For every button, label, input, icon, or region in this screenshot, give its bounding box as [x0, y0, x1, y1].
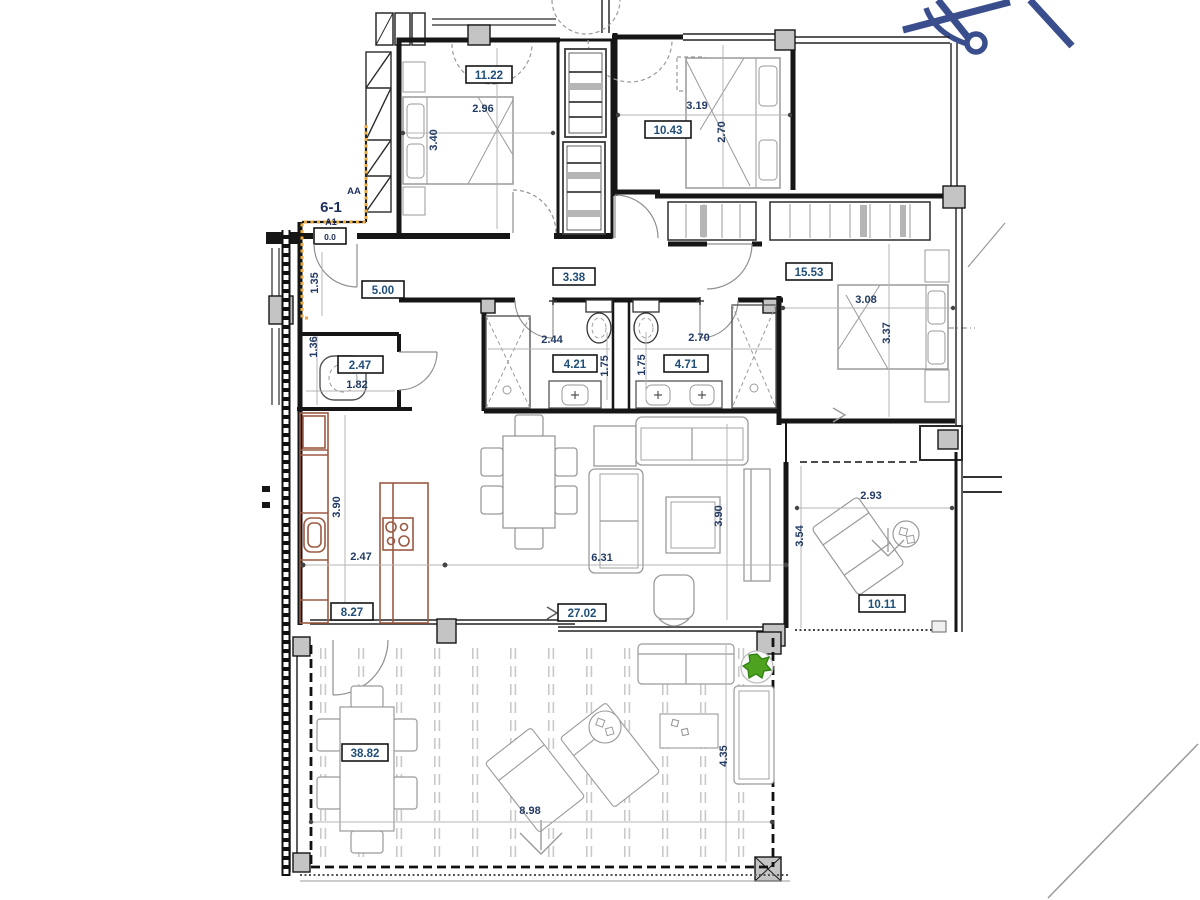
wardrobe-row	[668, 202, 930, 240]
dim-bath2-depth: 1.75	[636, 354, 648, 375]
terrace-side-area-label: 10.11	[868, 599, 897, 611]
side-table	[594, 426, 636, 466]
section-marker-label: AA	[347, 186, 361, 197]
dim-terrace-side-depth: 3.54	[794, 524, 806, 546]
outdoor-sofa	[638, 644, 734, 684]
dim-bath2-width: 2.70	[688, 332, 709, 344]
outdoor-table	[340, 707, 394, 831]
dim-bedroom2-depth: 2.70	[716, 121, 728, 142]
entry-ref-label: A1	[325, 217, 337, 227]
bedroom2-furniture	[677, 57, 780, 188]
hall-area-label: 5.00	[372, 285, 394, 297]
nightstand	[925, 370, 949, 402]
dining-table	[503, 436, 555, 528]
armchair	[654, 575, 694, 626]
dim-kitchen-depth: 3.90	[331, 496, 343, 517]
nightstand	[925, 250, 949, 282]
dim-terrace-main-depth: 4.35	[718, 745, 730, 766]
bedroom2-area-label: 10.43	[654, 125, 683, 137]
master-area-label: 15.53	[795, 267, 824, 279]
terrace-main-area-label: 38.82	[351, 748, 380, 760]
dim-master-depth: 3.37	[881, 322, 893, 343]
hall-closet	[563, 49, 606, 234]
side-table-round	[589, 711, 621, 743]
sink-vanity	[549, 381, 601, 408]
kitchen-area-label: 8.27	[341, 607, 363, 619]
double-sink-vanity	[636, 381, 722, 408]
coffee-table	[666, 497, 720, 553]
tv-unit	[744, 469, 770, 581]
dim-living-depth: 3.90	[713, 505, 725, 526]
dim-bedroom1-width: 2.96	[472, 103, 493, 115]
dim-kitchen-width: 2.47	[350, 551, 371, 563]
outdoor-coffee-table	[660, 714, 718, 748]
dim-terrace-main-width: 8.98	[519, 805, 540, 817]
wc-area-label: 2.47	[349, 360, 371, 372]
sofa	[636, 417, 748, 465]
nightstand	[403, 187, 425, 215]
dim-master-width: 3.08	[855, 294, 876, 306]
dim-bath1-depth: 1.75	[599, 355, 611, 376]
nightstand	[403, 62, 425, 92]
dim-hall-width: 1.35	[309, 272, 321, 293]
unit-number-label: 6-1	[320, 199, 342, 216]
plant-icon	[741, 651, 773, 683]
entry-level-label: 0.0	[324, 232, 336, 242]
living-area-label: 27.02	[568, 608, 597, 620]
toilet	[586, 300, 612, 343]
dim-living-width: 6.31	[591, 552, 612, 564]
dim-bedroom2-width: 3.19	[686, 100, 707, 112]
outdoor-bench	[734, 686, 774, 784]
dim-wc-depth: 1.36	[308, 336, 320, 357]
floor-plan-canvas: 11.22 10.43 15.53 5.00 3.38 4.21 4.71 2.…	[0, 0, 1200, 900]
dim-bedroom1-depth: 3.40	[428, 129, 440, 150]
dim-bath1-width: 2.44	[541, 334, 563, 346]
corridor-area-label: 3.38	[563, 272, 586, 284]
bath1-area-label: 4.21	[564, 359, 587, 371]
bath2-area-label: 4.71	[675, 359, 698, 371]
dim-wc-width: 1.82	[346, 379, 367, 391]
dim-terrace-side-width: 2.93	[860, 490, 881, 502]
bedroom1-area-label: 11.22	[475, 70, 503, 82]
double-bed	[686, 58, 780, 188]
